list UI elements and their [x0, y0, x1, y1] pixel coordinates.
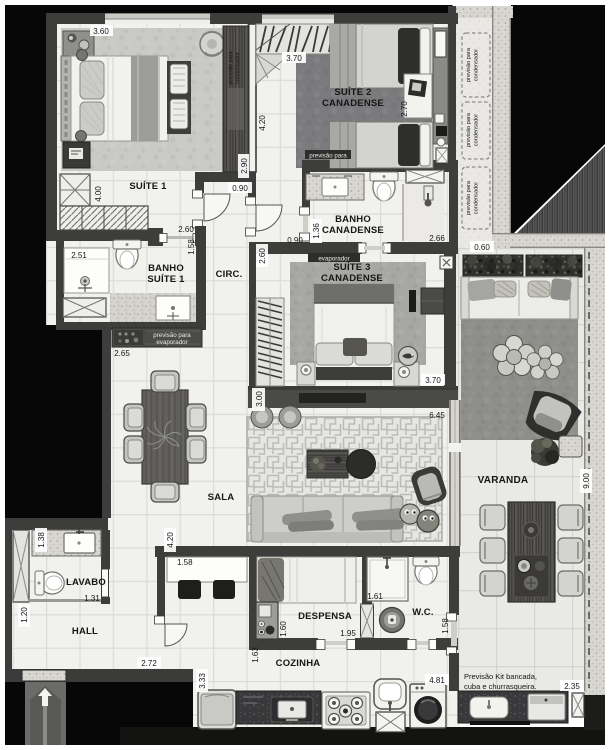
svg-text:SUÍTE 3: SUÍTE 3: [333, 262, 370, 273]
svg-text:DESPENSA: DESPENSA: [298, 611, 352, 622]
svg-text:condensador: condensador: [474, 114, 480, 146]
svg-text:1.95: 1.95: [340, 629, 356, 638]
svg-text:2.90: 2.90: [240, 158, 249, 174]
svg-text:1.60: 1.60: [279, 621, 288, 637]
svg-text:4.20: 4.20: [166, 532, 175, 548]
svg-text:1.36: 1.36: [312, 223, 321, 239]
svg-text:3.33: 3.33: [198, 673, 207, 689]
svg-text:BANHO: BANHO: [148, 263, 184, 274]
svg-text:2.51: 2.51: [71, 251, 87, 260]
svg-text:previsão para: previsão para: [228, 50, 234, 84]
svg-text:cuba e churrasqueira.: cuba e churrasqueira.: [464, 682, 537, 691]
svg-text:previsão para: previsão para: [466, 112, 472, 147]
svg-text:condensador: condensador: [474, 49, 480, 81]
svg-text:CANADENSE: CANADENSE: [322, 98, 384, 109]
svg-text:1.38: 1.38: [37, 532, 46, 548]
svg-text:4.81: 4.81: [429, 676, 445, 685]
svg-text:3.70: 3.70: [425, 376, 441, 385]
svg-text:2.60: 2.60: [178, 225, 194, 234]
svg-text:evaporador: evaporador: [156, 339, 187, 346]
svg-text:previsão para: previsão para: [466, 47, 472, 82]
svg-text:2.70: 2.70: [400, 101, 409, 117]
svg-text:HALL: HALL: [72, 626, 98, 637]
svg-text:2.72: 2.72: [141, 659, 157, 668]
svg-text:SUÍTE 1: SUÍTE 1: [129, 181, 167, 192]
svg-text:SUÍTE 1: SUÍTE 1: [147, 274, 185, 285]
svg-text:Previsão Kit bancada,: Previsão Kit bancada,: [464, 672, 537, 681]
svg-text:previsão para: previsão para: [309, 153, 347, 160]
svg-text:3.60: 3.60: [93, 27, 109, 36]
svg-text:BANHO: BANHO: [335, 214, 371, 225]
svg-text:previsão para: previsão para: [153, 332, 191, 339]
svg-text:1.20: 1.20: [20, 607, 29, 623]
svg-text:4.00: 4.00: [94, 186, 103, 202]
svg-text:0.90: 0.90: [287, 236, 303, 245]
svg-text:VARANDA: VARANDA: [478, 475, 529, 486]
svg-text:condensador: condensador: [474, 182, 480, 214]
svg-text:condensador: condensador: [235, 52, 241, 84]
svg-text:CIRC.: CIRC.: [216, 269, 243, 280]
svg-text:3.70: 3.70: [286, 54, 302, 63]
svg-text:LAVABO: LAVABO: [66, 577, 106, 588]
svg-text:1.58: 1.58: [441, 618, 450, 634]
svg-text:9.00: 9.00: [582, 473, 591, 489]
svg-text:4.20: 4.20: [258, 115, 267, 131]
svg-text:evaporador: evaporador: [318, 256, 349, 263]
svg-text:2.66: 2.66: [429, 234, 445, 243]
svg-text:2.60: 2.60: [258, 248, 267, 264]
svg-text:1.63: 1.63: [251, 647, 260, 663]
svg-text:2.65: 2.65: [114, 349, 130, 358]
svg-text:2.35: 2.35: [564, 682, 580, 691]
svg-text:0.90: 0.90: [232, 184, 248, 193]
svg-text:SUÍTE 2: SUÍTE 2: [334, 87, 371, 98]
svg-text:0.60: 0.60: [474, 243, 490, 252]
svg-text:6.45: 6.45: [429, 411, 445, 420]
svg-text:W.C.: W.C.: [412, 607, 433, 618]
svg-text:1.31: 1.31: [84, 594, 100, 603]
svg-text:COZINHA: COZINHA: [276, 658, 321, 669]
svg-text:3.00: 3.00: [255, 391, 264, 407]
svg-text:CANADENSE: CANADENSE: [321, 273, 383, 284]
svg-text:1.61: 1.61: [367, 592, 383, 601]
svg-text:SALA: SALA: [208, 492, 235, 503]
svg-text:previsão para: previsão para: [466, 180, 472, 215]
svg-text:1.58: 1.58: [187, 239, 196, 255]
svg-text:1.58: 1.58: [177, 558, 193, 567]
svg-text:CANADENSE: CANADENSE: [322, 225, 384, 236]
